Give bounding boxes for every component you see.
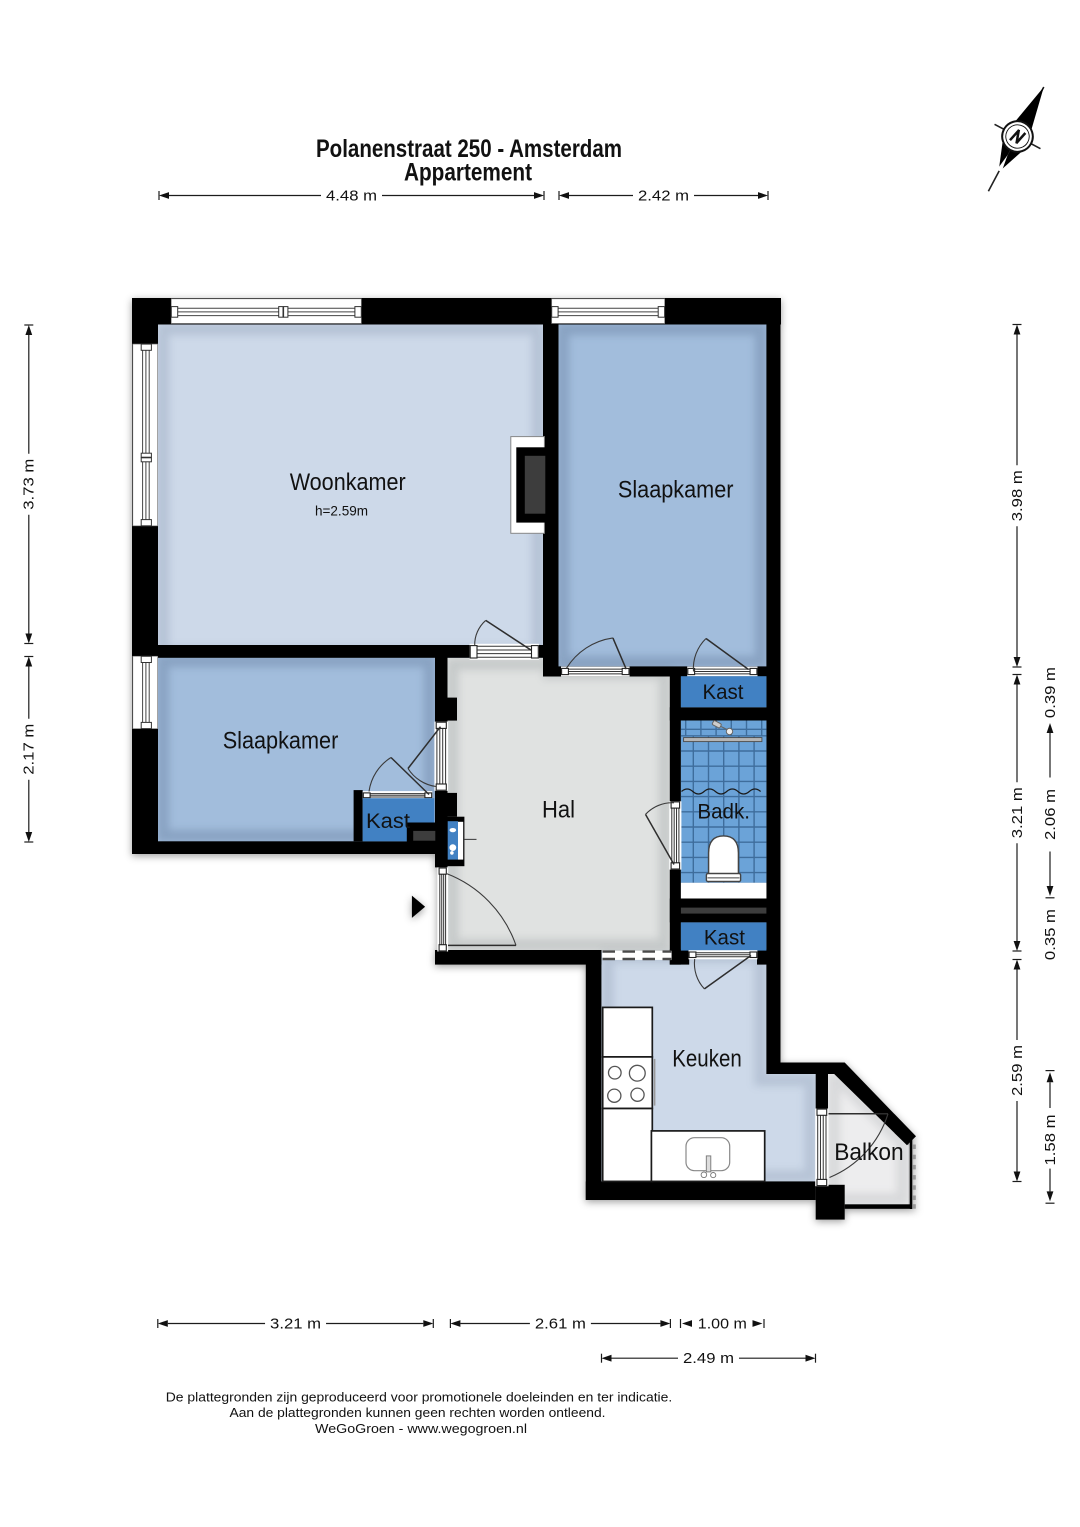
svg-text:De plattegronden zijn geproduc: De plattegronden zijn geproduceerd voor … bbox=[166, 1390, 673, 1405]
svg-text:1.58 m: 1.58 m bbox=[1042, 1115, 1059, 1166]
svg-text:h=2.59m: h=2.59m bbox=[315, 503, 368, 519]
svg-text:2.17 m: 2.17 m bbox=[21, 724, 38, 775]
svg-text:Badk.: Badk. bbox=[697, 801, 750, 824]
svg-text:2.59 m: 2.59 m bbox=[1009, 1045, 1026, 1096]
svg-text:Aan de plattegronden kunnen ge: Aan de plattegronden kunnen geen rechten… bbox=[230, 1405, 606, 1420]
svg-text:4.48 m: 4.48 m bbox=[326, 187, 377, 204]
svg-text:3.98 m: 3.98 m bbox=[1009, 470, 1026, 521]
svg-text:Balkon: Balkon bbox=[834, 1139, 903, 1166]
svg-text:2.42 m: 2.42 m bbox=[638, 187, 689, 204]
svg-text:Kast: Kast bbox=[704, 926, 745, 949]
svg-text:2.49 m: 2.49 m bbox=[683, 1350, 734, 1367]
svg-text:2.06 m: 2.06 m bbox=[1042, 789, 1059, 840]
svg-text:Appartement: Appartement bbox=[404, 159, 533, 187]
svg-text:3.73 m: 3.73 m bbox=[21, 459, 38, 510]
svg-text:Slaapkamer: Slaapkamer bbox=[223, 728, 339, 755]
svg-text:Kast: Kast bbox=[366, 810, 410, 833]
svg-text:1.00 m: 1.00 m bbox=[698, 1315, 747, 1332]
svg-text:Kast: Kast bbox=[703, 681, 744, 704]
svg-text:Hal: Hal bbox=[542, 797, 575, 824]
svg-text:Slaapkamer: Slaapkamer bbox=[618, 477, 734, 504]
svg-text:3.21 m: 3.21 m bbox=[1009, 787, 1026, 838]
svg-text:2.61 m: 2.61 m bbox=[535, 1315, 586, 1332]
svg-text:3.21 m: 3.21 m bbox=[270, 1315, 321, 1332]
svg-text:Woonkamer: Woonkamer bbox=[290, 469, 406, 496]
svg-text:0.35 m: 0.35 m bbox=[1042, 909, 1059, 960]
svg-text:WeGoGroen - www.wegogroen.nl: WeGoGroen - www.wegogroen.nl bbox=[315, 1421, 527, 1436]
svg-text:Keuken: Keuken bbox=[672, 1046, 742, 1073]
svg-text:0.39 m: 0.39 m bbox=[1042, 667, 1059, 718]
